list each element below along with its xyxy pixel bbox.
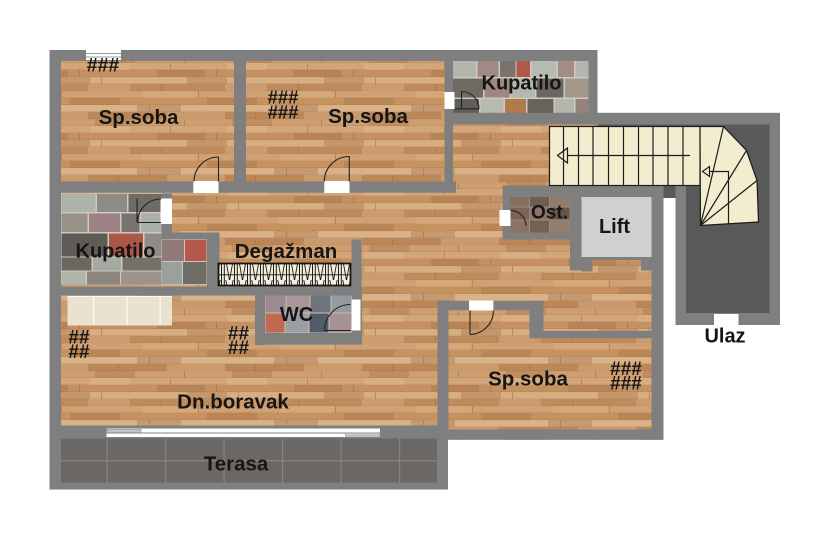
svg-text:##: ## (228, 338, 250, 359)
svg-text:Dn.boravak: Dn.boravak (177, 391, 289, 414)
svg-text:Degažman: Degažman (235, 240, 338, 263)
svg-text:Ulaz: Ulaz (704, 326, 745, 348)
svg-text:Sp.soba: Sp.soba (488, 368, 568, 391)
svg-text:###: ### (87, 55, 120, 77)
svg-text:WC: WC (280, 304, 313, 326)
svg-text:Lift: Lift (599, 216, 630, 238)
svg-text:Terasa: Terasa (204, 453, 269, 476)
svg-text:Ost.: Ost. (531, 203, 568, 224)
svg-text:###: ### (610, 374, 642, 395)
svg-text:Kupatilo: Kupatilo (482, 73, 562, 95)
svg-text:Sp.soba: Sp.soba (328, 105, 408, 128)
svg-text:##: ## (68, 342, 90, 363)
svg-text:###: ### (268, 102, 299, 123)
svg-text:Sp.soba: Sp.soba (99, 106, 179, 129)
svg-text:Kupatilo: Kupatilo (76, 241, 156, 263)
